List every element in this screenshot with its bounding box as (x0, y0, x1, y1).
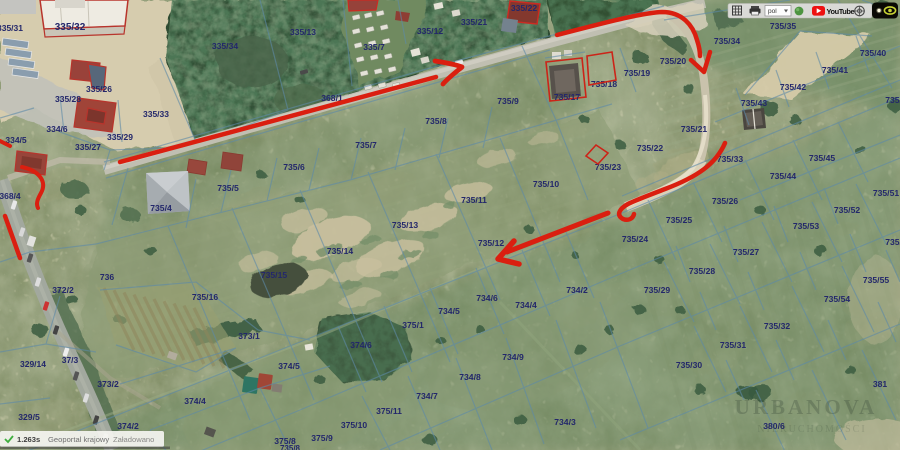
svg-text:Załadowano: Załadowano (113, 435, 154, 444)
svg-text:735/32: 735/32 (764, 321, 791, 331)
svg-text:735/31: 735/31 (720, 340, 747, 350)
svg-text:735/44: 735/44 (770, 171, 797, 181)
svg-text:335/13: 335/13 (290, 27, 316, 37)
svg-text:335/22: 335/22 (511, 3, 538, 13)
svg-text:735/7: 735/7 (355, 140, 377, 150)
svg-text:Geoportal krajowy: Geoportal krajowy (48, 435, 109, 444)
svg-text:734/6: 734/6 (476, 293, 498, 303)
svg-text:375/9: 375/9 (311, 433, 333, 443)
svg-text:734/2: 734/2 (566, 285, 588, 295)
svg-text:735/4: 735/4 (885, 95, 900, 105)
svg-text:37/3: 37/3 (62, 355, 79, 365)
svg-text:335/21: 335/21 (461, 17, 488, 27)
svg-text:735/28: 735/28 (689, 266, 716, 276)
svg-text:335/28: 335/28 (55, 94, 81, 104)
svg-text:735/6: 735/6 (283, 162, 305, 172)
svg-text:329/5: 329/5 (18, 412, 40, 422)
svg-text:735/8: 735/8 (425, 116, 447, 126)
svg-text:335/26: 335/26 (86, 84, 112, 94)
svg-text:735/9: 735/9 (497, 96, 519, 106)
svg-text:734/7: 734/7 (416, 391, 438, 401)
svg-text:735/40: 735/40 (860, 48, 887, 58)
svg-text:375/1: 375/1 (402, 320, 424, 330)
svg-text:329/14: 329/14 (20, 359, 46, 369)
svg-text:735/54: 735/54 (824, 294, 851, 304)
svg-text:735/33: 735/33 (717, 154, 744, 164)
svg-text:735/19: 735/19 (624, 68, 651, 78)
svg-text:735/11: 735/11 (461, 195, 487, 205)
svg-text:335/31: 335/31 (0, 23, 23, 33)
svg-text:735/52: 735/52 (834, 205, 861, 215)
svg-text:NIERUCHOMOŚCI: NIERUCHOMOŚCI (757, 423, 866, 435)
svg-text:373/2: 373/2 (97, 379, 119, 389)
svg-text:374/2: 374/2 (117, 421, 139, 431)
svg-text:735/22: 735/22 (637, 143, 664, 153)
svg-text:735/21: 735/21 (681, 124, 708, 134)
svg-text:735/5: 735/5 (217, 183, 239, 193)
svg-text:pol: pol (768, 8, 777, 15)
svg-text:335/32: 335/32 (55, 22, 86, 33)
svg-text:735/5: 735/5 (885, 237, 900, 247)
svg-text:335/29: 335/29 (107, 132, 133, 142)
svg-text:734/9: 734/9 (502, 352, 524, 362)
svg-text:735/15: 735/15 (261, 270, 288, 280)
svg-text:735/14: 735/14 (327, 246, 354, 256)
svg-text:735/26: 735/26 (712, 196, 739, 206)
svg-text:368/4: 368/4 (0, 191, 21, 201)
svg-text:335/34: 335/34 (212, 41, 239, 51)
svg-text:735/13: 735/13 (392, 220, 419, 230)
svg-text:735/24: 735/24 (622, 234, 649, 244)
svg-text:374/6: 374/6 (350, 340, 372, 350)
svg-text:735/4: 735/4 (150, 203, 172, 213)
svg-text:375/11: 375/11 (376, 406, 402, 416)
svg-text:735/42: 735/42 (780, 82, 807, 92)
svg-text:735/55: 735/55 (863, 275, 890, 285)
svg-text:372/2: 372/2 (52, 285, 74, 295)
svg-text:335/12: 335/12 (417, 26, 444, 36)
svg-text:734/8: 734/8 (459, 372, 481, 382)
svg-text:735/43: 735/43 (741, 98, 768, 108)
svg-text:735/30: 735/30 (676, 360, 703, 370)
svg-text:734/5: 734/5 (438, 306, 460, 316)
svg-text:735/53: 735/53 (793, 221, 820, 231)
svg-text:736: 736 (100, 272, 115, 282)
svg-text:735/41: 735/41 (822, 65, 849, 75)
svg-text:735/17: 735/17 (554, 92, 581, 102)
svg-text:735/12: 735/12 (478, 238, 505, 248)
svg-text:335/7: 335/7 (363, 42, 385, 52)
svg-text:1.263s: 1.263s (17, 435, 40, 444)
svg-text:735/20: 735/20 (660, 56, 687, 66)
svg-text:734/4: 734/4 (515, 300, 537, 310)
svg-text:YouTube: YouTube (827, 7, 855, 16)
svg-text:735/35: 735/35 (770, 21, 797, 31)
svg-text:URBANOVA: URBANOVA (735, 395, 878, 419)
svg-text:374/5: 374/5 (278, 361, 300, 371)
svg-text:373/1: 373/1 (238, 331, 260, 341)
svg-text:334/6: 334/6 (46, 124, 68, 134)
svg-text:735/25: 735/25 (666, 215, 693, 225)
svg-text:734/3: 734/3 (554, 417, 576, 427)
svg-text:335/33: 335/33 (143, 109, 169, 119)
svg-text:735/29: 735/29 (644, 285, 671, 295)
svg-text:735/45: 735/45 (809, 153, 836, 163)
svg-text:735/51: 735/51 (873, 188, 900, 198)
svg-text:735/16: 735/16 (192, 292, 219, 302)
svg-text:335/27: 335/27 (75, 142, 101, 152)
svg-text:374/4: 374/4 (184, 396, 206, 406)
svg-text:735/8: 735/8 (280, 444, 301, 450)
svg-text:735/27: 735/27 (733, 247, 760, 257)
svg-text:375/10: 375/10 (341, 420, 368, 430)
svg-text:735/34: 735/34 (714, 36, 741, 46)
svg-text:381: 381 (873, 379, 888, 389)
svg-text:735/10: 735/10 (533, 179, 560, 189)
